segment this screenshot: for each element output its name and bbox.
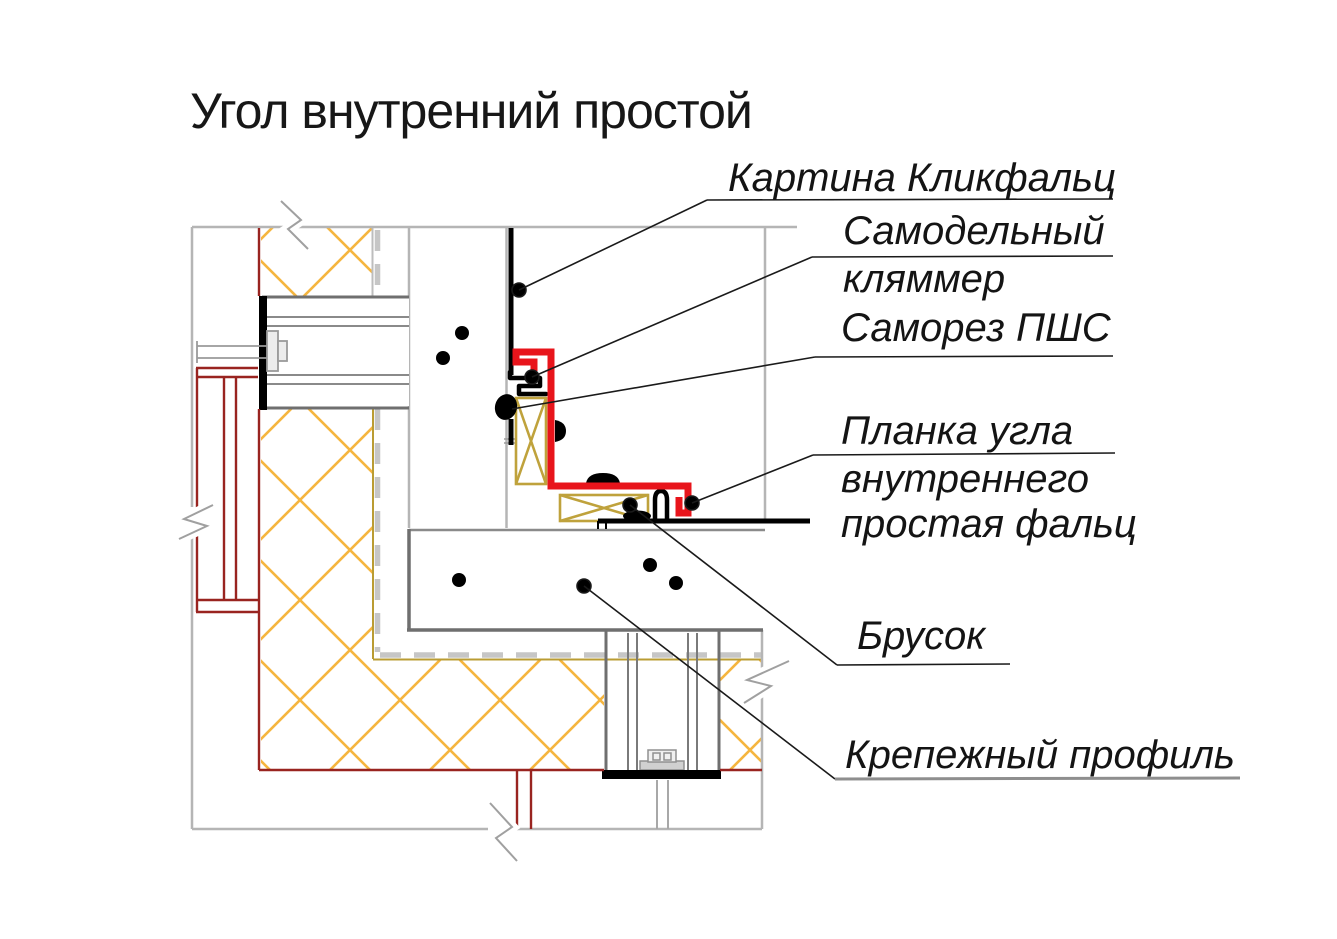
- diagram-page: Угол внутренний простой Картина Кликфаль…: [0, 0, 1337, 939]
- callout-krepezhny-profil: Крепежный профиль: [845, 735, 1235, 775]
- page-title: Угол внутренний простой: [190, 82, 752, 140]
- callout-planka-ugla-line3: простая фальц: [841, 504, 1137, 544]
- callout-planka-ugla-line1: Планка угла: [841, 411, 1073, 451]
- callout-samodelny-klyammer-line2: кляммер: [843, 259, 1005, 299]
- callout-samodelny-klyammer-line1: Самодельный: [843, 211, 1105, 251]
- membrane-dashed-line: [378, 230, 763, 655]
- left-wall-fixing-profile: [196, 228, 259, 770]
- bottom-mounting-profile: [602, 631, 721, 829]
- callout-planka-ugla-line2: внутреннего: [841, 459, 1089, 499]
- wall-anchor-screw: [197, 331, 287, 371]
- callout-samorez-pshs: Саморез ПШС: [841, 308, 1111, 348]
- callout-kartina-klikfalz: Картина Кликфальц: [728, 158, 1116, 198]
- bottom-seam-fold: [655, 491, 667, 521]
- callout-brusok: Брусок: [857, 616, 985, 656]
- construction-detail-drawing: [0, 0, 1337, 939]
- screw-head-top: [586, 473, 620, 483]
- screw-head-side: [555, 420, 566, 442]
